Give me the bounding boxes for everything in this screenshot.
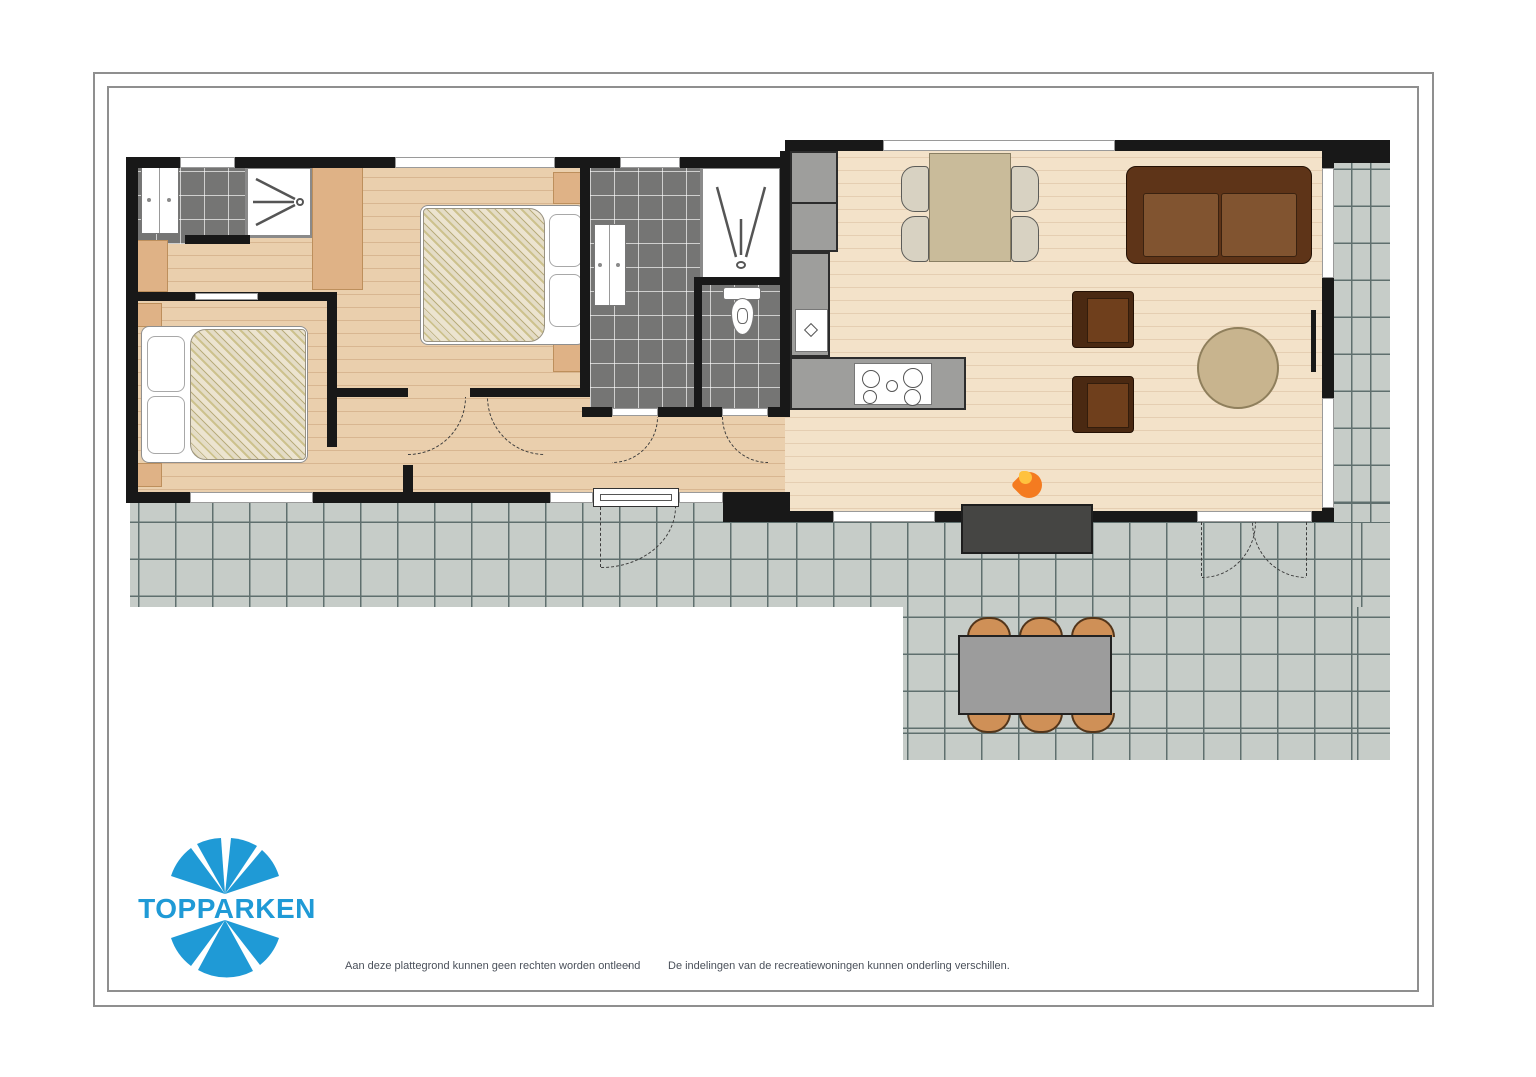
- wall-top: [235, 157, 395, 168]
- bed-1-pillow: [147, 336, 185, 392]
- wall-bathroom-left: [580, 166, 590, 397]
- window: [883, 140, 1115, 151]
- disclaimer-right: De indelingen van de recreatiewoningen k…: [668, 960, 1010, 972]
- flame-icon: [1012, 462, 1046, 506]
- wall-smallbath: [185, 235, 250, 244]
- wall-stub: [403, 465, 413, 502]
- armchair: [1072, 376, 1134, 433]
- armchair-seat: [1087, 383, 1129, 428]
- sink-diamond-icon: [804, 323, 818, 337]
- wall-toilet-top: [694, 277, 790, 285]
- logo-wordmark: TOPPARKEN: [122, 893, 332, 925]
- sofa-cushion: [1143, 193, 1219, 257]
- handle-dot: [598, 263, 602, 267]
- shower-spray-icon: [248, 169, 310, 235]
- kitchen-sink: [795, 309, 828, 352]
- disclaimer-separator: -: [627, 960, 631, 972]
- door-threshold: [722, 408, 768, 416]
- burner: [862, 370, 880, 388]
- handle-dot: [147, 198, 151, 202]
- armchair-seat: [1087, 298, 1129, 343]
- hall-cabinet: [134, 240, 168, 292]
- door-swing-line: [600, 507, 601, 567]
- window: [550, 492, 593, 503]
- terrace-strip-right: [1334, 151, 1390, 522]
- shower-spray-icon: [703, 169, 779, 281]
- patio-door-opening: [1197, 511, 1312, 522]
- sofa-cushion: [1221, 193, 1297, 257]
- wall-bedroom1: [327, 292, 337, 447]
- dining-table: [929, 153, 1011, 262]
- dining-chair: [1011, 166, 1039, 212]
- front-door: [593, 488, 679, 507]
- dining-chair: [901, 166, 929, 212]
- wall-bottom: [785, 511, 833, 522]
- cabinet-divider: [159, 167, 160, 233]
- wall-right: [1322, 140, 1334, 168]
- wall-bathroom-bottom: [582, 407, 612, 417]
- bed-2-pillow: [549, 214, 582, 267]
- wall-top: [785, 140, 883, 151]
- door-leaf: [1311, 310, 1316, 372]
- bed-1-duvet: [190, 329, 306, 460]
- window: [190, 492, 313, 503]
- bed-2-pillow: [549, 274, 582, 327]
- door-swing-line: [1201, 522, 1202, 576]
- fireplace: [961, 504, 1093, 554]
- door-threshold: [612, 408, 658, 416]
- hob: [854, 363, 932, 405]
- burner: [863, 390, 877, 404]
- window: [833, 511, 935, 522]
- burner: [886, 380, 898, 392]
- wall-step: [723, 492, 790, 522]
- dining-chair: [901, 216, 929, 262]
- handle-dot: [167, 198, 171, 202]
- window: [620, 157, 680, 168]
- dining-chair: [1011, 216, 1039, 262]
- burner: [904, 389, 921, 406]
- wall-bottom: [1312, 511, 1334, 522]
- cabinet-divider: [792, 202, 836, 204]
- bathroom-vanity: [594, 224, 626, 306]
- armchair: [1072, 291, 1134, 348]
- bed-1-pillow: [147, 396, 185, 454]
- disclaimer-left: Aan deze plattegrond kunnen geen rechten…: [345, 960, 640, 972]
- wall-bedroom2: [470, 388, 590, 397]
- small-bath-cabinet: [141, 166, 179, 234]
- toilet-bowl-inner: [737, 308, 748, 324]
- wall-right: [1322, 278, 1334, 398]
- outdoor-table: [958, 635, 1112, 715]
- door-threshold: [195, 293, 258, 300]
- sofa: [1126, 166, 1312, 264]
- wall-bottom: [313, 492, 550, 503]
- wall-top: [680, 157, 790, 168]
- front-door-panel: [600, 494, 672, 501]
- wall-bedroom2: [337, 388, 408, 397]
- wardrobe-bedroom2: [312, 166, 363, 290]
- wall-bathroom-bottom: [768, 407, 790, 417]
- main-shower: [700, 166, 782, 284]
- window: [1322, 168, 1334, 278]
- kitchen-cabinet-top: [790, 151, 838, 252]
- wall-bottom: [126, 492, 190, 503]
- window: [180, 157, 235, 168]
- wall-bathroom-bottom: [658, 407, 722, 417]
- door-swing-line: [1306, 522, 1307, 576]
- cabinet-divider: [609, 225, 610, 305]
- coffee-table: [1197, 327, 1279, 409]
- window: [679, 492, 723, 503]
- window: [395, 157, 555, 168]
- flame-inner: [1019, 471, 1032, 484]
- floor-plan-page: TOPPARKEN Aan deze plattegrond kunnen ge…: [0, 0, 1536, 1077]
- wall-left: [126, 157, 138, 503]
- window: [1322, 398, 1334, 508]
- handle-dot: [616, 263, 620, 267]
- burner: [903, 368, 923, 388]
- wall-toilet: [694, 283, 702, 407]
- small-shower: [245, 166, 313, 238]
- bed-2-duvet: [423, 208, 545, 342]
